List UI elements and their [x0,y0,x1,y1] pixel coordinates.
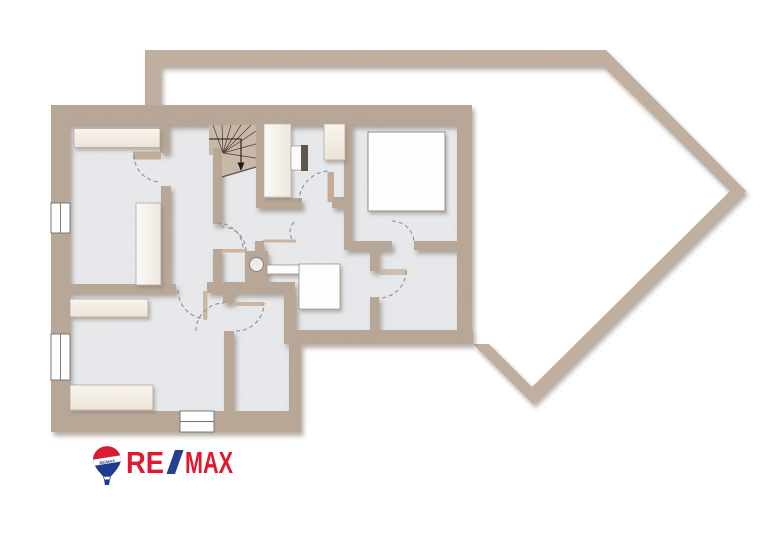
svg-text:RE: RE [126,445,164,480]
svg-text:MAX: MAX [185,445,233,480]
